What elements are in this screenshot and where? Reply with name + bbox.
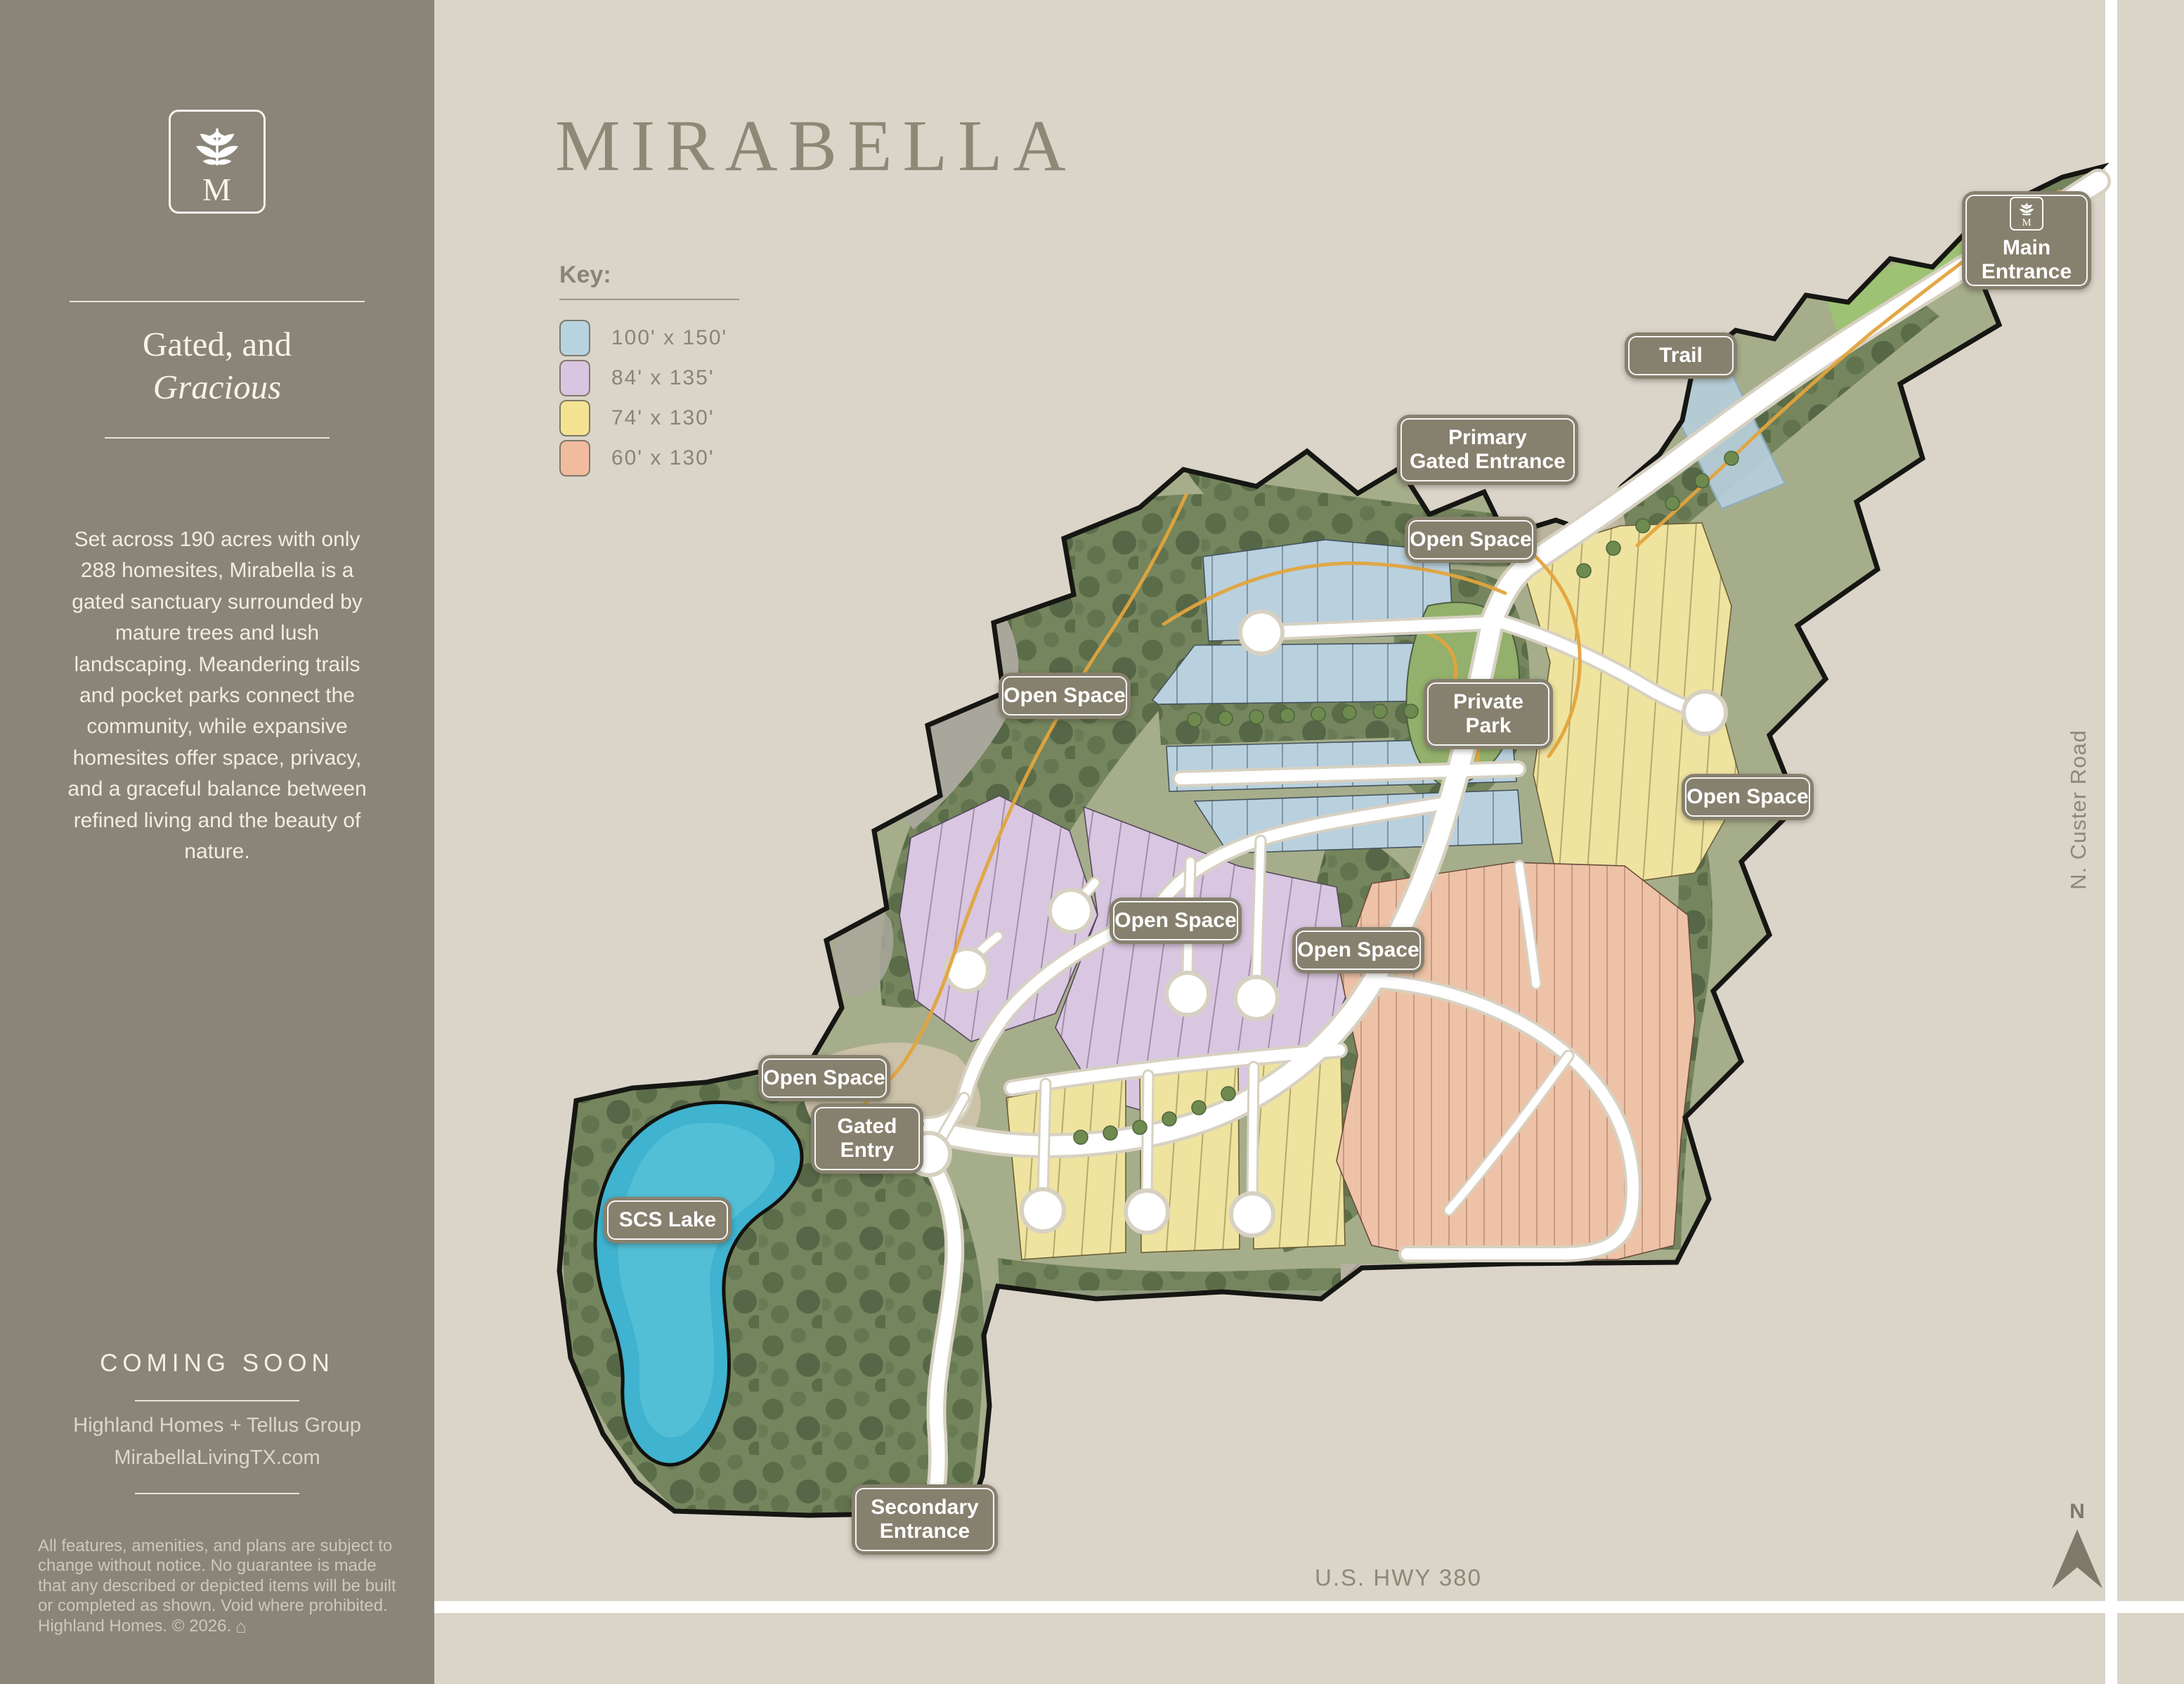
page-title: MIRABELLA [555, 104, 1077, 188]
key-item-100x150: 100' x 150' [559, 320, 739, 356]
swatch-60x130 [559, 440, 590, 477]
map-label-primary-gated-entrance: Primary Gated Entrance [1397, 415, 1578, 485]
key-item-84x135: 84' x 135' [559, 360, 739, 396]
badge-label: Open Space [1410, 528, 1531, 552]
heading-line-1: Gated, and [0, 323, 434, 366]
logo-monogram: M [2022, 218, 2031, 228]
swatch-100x150 [559, 320, 590, 356]
website-label: MirabellaLivingTX.com [0, 1446, 434, 1470]
map-key: Key: 100' x 150' 84' x 135' 74' x 130' 6… [559, 261, 739, 480]
floral-sprig-icon [195, 123, 240, 172]
map-label-gated-entry: Gated Entry [811, 1103, 923, 1174]
map-label-open-space-west: Open Space [999, 673, 1131, 719]
coming-soon-label: COMING SOON [0, 1349, 434, 1378]
legal-disclaimer: All features, amenities, and plans are s… [38, 1536, 399, 1636]
sidebar-heading: Gated, and Gracious [0, 323, 434, 409]
badge-label: Open Space [1114, 909, 1236, 933]
sidebar: M Gated, and Gracious Set across 190 acr… [0, 0, 434, 1684]
map-label-main-entrance: M Main Entrance [1962, 191, 2091, 290]
heading-line-2: Gracious [0, 366, 434, 409]
badge-label: Trail [1659, 344, 1703, 368]
key-item-60x130: 60' x 130' [559, 440, 739, 477]
key-label: 74' x 130' [611, 406, 715, 430]
custer-road-label: N. Custer Road [2066, 730, 2091, 890]
equal-housing-icon: ⌂ [231, 1616, 247, 1637]
divider [70, 301, 365, 302]
map-label-scs-lake: SCS Lake [604, 1197, 732, 1243]
community-description: Set across 190 acres with only 288 homes… [55, 524, 379, 867]
mirabella-logo-mini: M [2010, 197, 2043, 231]
badge-label: Primary Gated Entrance [1410, 426, 1566, 474]
site-plan-page: M Gated, and Gracious Set across 190 acr… [0, 0, 2184, 1684]
swatch-74x130 [559, 400, 590, 436]
badge-label: Main Entrance [1982, 236, 2072, 285]
divider [135, 1400, 299, 1401]
floral-sprig-icon [2018, 201, 2035, 218]
divider [105, 437, 330, 439]
compass: N [2041, 1501, 2114, 1594]
badge-label: Open Space [1297, 938, 1419, 963]
map-label-open-space-lake: Open Space [758, 1055, 890, 1101]
key-title: Key: [559, 261, 739, 289]
developers-label: Highland Homes + Tellus Group [0, 1414, 434, 1437]
map-label-open-space-north: Open Space [1405, 517, 1537, 563]
compass-north-label: N [2041, 1501, 2114, 1522]
map-label-open-space-east: Open Space [1682, 774, 1814, 820]
map-label-private-park: Private Park [1424, 679, 1553, 749]
map-label-open-space-central: Open Space [1110, 898, 1242, 944]
badge-label: Private Park [1453, 690, 1523, 739]
key-label: 100' x 150' [611, 326, 727, 350]
key-label: 60' x 130' [611, 446, 715, 470]
highway-380-label: U.S. HWY 380 [1258, 1565, 1539, 1591]
swatch-84x135 [559, 360, 590, 396]
divider [559, 299, 739, 300]
map-label-secondary-entrance: Secondary Entrance [852, 1484, 998, 1555]
badge-label: Open Space [1686, 785, 1808, 810]
badge-label: Gated Entry [837, 1115, 897, 1163]
divider [135, 1493, 299, 1494]
map-label-trail: Trail [1625, 332, 1737, 379]
badge-label: Secondary Entrance [871, 1496, 978, 1544]
logo-monogram: M [202, 174, 232, 206]
site-interior [559, 165, 2101, 1515]
badge-label: Open Space [763, 1066, 885, 1091]
mirabella-logo: M [169, 110, 266, 214]
key-item-74x130: 74' x 130' [559, 400, 739, 436]
badge-label: Open Space [1003, 684, 1125, 708]
map-label-open-space-mid: Open Space [1292, 927, 1424, 973]
badge-label: SCS Lake [619, 1208, 716, 1233]
key-label: 84' x 135' [611, 366, 715, 390]
disclaimer-text: All features, amenities, and plans are s… [38, 1536, 396, 1636]
